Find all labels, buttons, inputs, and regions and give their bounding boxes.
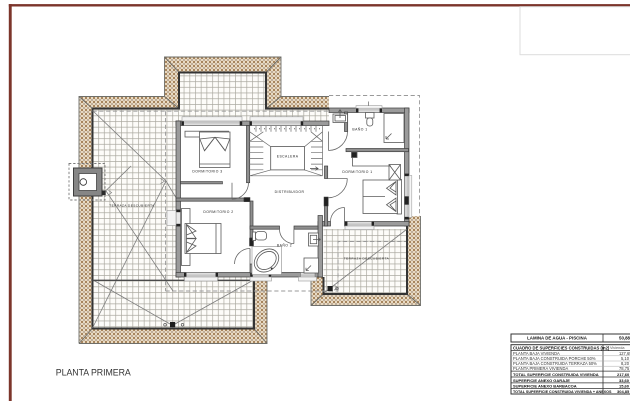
svg-text:TERRAZA DESCUBIERTA: TERRAZA DESCUBIERTA xyxy=(109,204,155,208)
svg-text:217,60: 217,60 xyxy=(617,372,630,377)
svg-text:304,85: 304,85 xyxy=(617,389,630,394)
svg-text:SUPERFICIE ANEXO GARAJE: SUPERFICIE ANEXO GARAJE xyxy=(513,378,570,383)
svg-text:PLANTA PRIMERA VIVIENDA: PLANTA PRIMERA VIVIENDA xyxy=(513,366,568,371)
svg-text:78,75: 78,75 xyxy=(619,366,630,371)
svg-text:PLANTA PRIMERA: PLANTA PRIMERA xyxy=(56,367,131,377)
svg-text:DORMITORIO 2: DORMITORIO 2 xyxy=(203,210,233,214)
svg-text:SUPERFICIE ANEXO BARBACOA: SUPERFICIE ANEXO BARBACOA xyxy=(513,384,577,389)
svg-text:Vivienda: Vivienda xyxy=(610,346,625,350)
svg-text:50,88: 50,88 xyxy=(619,336,630,341)
svg-text:LAMINA DE AGUA - PISCINA: LAMINA DE AGUA - PISCINA xyxy=(527,336,588,341)
svg-text:DORMITORIO 1: DORMITORIO 1 xyxy=(342,170,372,174)
svg-text:ESCALERA: ESCALERA xyxy=(277,154,299,158)
svg-text:TERRAZA DESCUBIERTA: TERRAZA DESCUBIERTA xyxy=(344,256,390,260)
svg-text:CUADRO DE SUPERFICIES CONSTRUI: CUADRO DE SUPERFICIES CONSTRUIDAS (m2) xyxy=(513,345,610,350)
svg-text:DISTRIBUIDOR: DISTRIBUIDOR xyxy=(275,190,305,194)
svg-text:BAÑO 1: BAÑO 1 xyxy=(352,127,367,132)
svg-text:BAÑO 2: BAÑO 2 xyxy=(277,243,292,248)
svg-text:TOTAL SUPERFICIE CONSTRUIDA VI: TOTAL SUPERFICIE CONSTRUIDA VIVIENDA + A… xyxy=(513,390,612,394)
svg-text:DORMITORIO 3: DORMITORIO 3 xyxy=(192,170,222,174)
svg-text:33,60: 33,60 xyxy=(619,378,630,383)
svg-text:TOTAL SUPERFICIE CONSTRUIDA VI: TOTAL SUPERFICIE CONSTRUIDA VIVIENDA xyxy=(513,372,599,377)
